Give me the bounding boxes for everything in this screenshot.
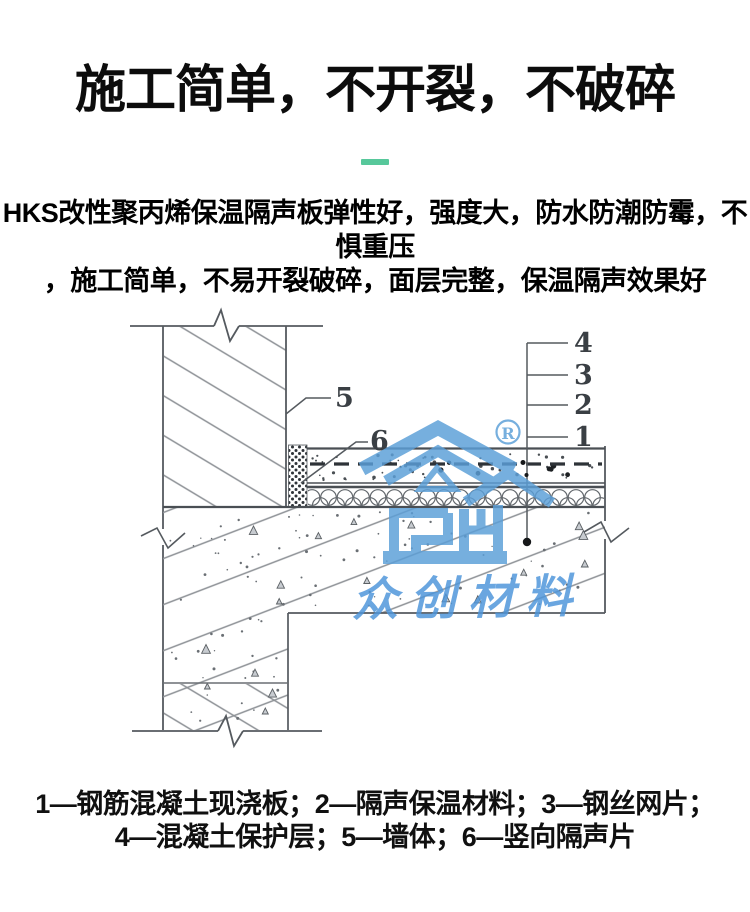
- product-description-line1: HKS改性聚丙烯保温隔声板弹性好，强度大，防水防潮防霉，不惧重压: [0, 196, 750, 264]
- svg-text:R: R: [501, 424, 515, 443]
- diagram-legend: 1—钢筋混凝土现浇板；2—隔声保温材料；3—钢丝网片； 4—混凝土保护层；5—墙…: [0, 788, 750, 854]
- product-detail-page: 施工简单，不开裂，不破碎 HKS改性聚丙烯保温隔声板弹性好，强度大，防水防潮防霉…: [0, 0, 750, 912]
- callout-number-2: 2: [574, 390, 593, 421]
- callout-number-1: 1: [574, 422, 593, 453]
- product-description: HKS改性聚丙烯保温隔声板弹性好，强度大，防水防潮防霉，不惧重压 ，施工简单，不…: [0, 196, 750, 298]
- callout-number-4: 4: [574, 328, 593, 359]
- vertical-sound-strip: [289, 445, 308, 507]
- stipple-speck: [525, 473, 529, 477]
- stipple-speck: [521, 460, 526, 465]
- callout-number-3: 3: [574, 360, 593, 391]
- product-description-line2: ，施工简单，不易开裂破碎，面层完整，保温隔声效果好: [0, 264, 750, 298]
- accent-divider: [361, 159, 389, 165]
- legend-line-2: 4—混凝土保护层；5—墙体；6—竖向隔声片: [0, 821, 750, 854]
- brand-watermark-text: 众创材料: [352, 569, 585, 627]
- registered-trademark-icon: R: [497, 421, 520, 444]
- bottom-break-line: [132, 716, 322, 746]
- construction-detail-diagram: 4 3 2 1 5 6 R 众创材料: [0, 300, 750, 780]
- callout-number-5: 5: [335, 383, 354, 414]
- page-title: 施工简单，不开裂，不破碎: [0, 62, 750, 118]
- legend-line-1: 1—钢筋混凝土现浇板；2—隔声保温材料；3—钢丝网片；: [0, 788, 750, 821]
- leader-end-dot: [523, 538, 531, 546]
